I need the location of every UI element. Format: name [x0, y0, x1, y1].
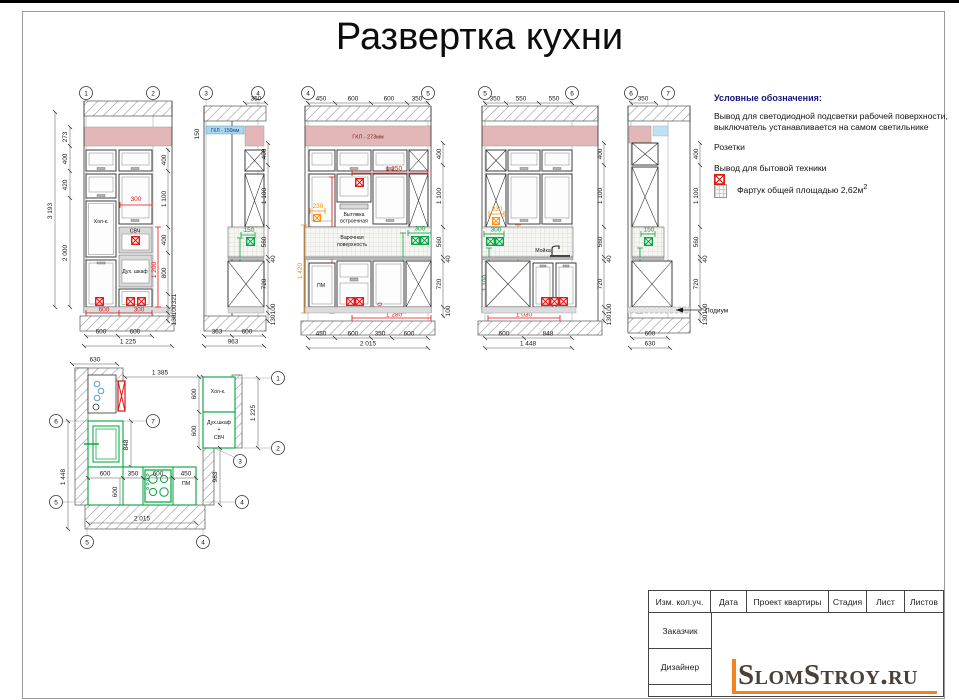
svg-text:130: 130 [171, 314, 178, 325]
svg-text:321: 321 [171, 293, 178, 304]
svg-text:600: 600 [96, 329, 107, 336]
led-output-symbol [314, 215, 321, 222]
tall-cabinet-crossed [409, 150, 428, 227]
logo-accent-bar [732, 659, 736, 691]
title-block: Изм. кол.уч. Дата Проект квартиры Стадия… [648, 590, 944, 697]
svg-text:2 015: 2 015 [360, 341, 377, 348]
svg-text:1 250: 1 250 [386, 166, 403, 173]
socket-symbol [645, 238, 653, 246]
legend-item-text: Вывод для светодиодной подсветки рабочей… [714, 111, 952, 133]
appliance-output-symbol [356, 179, 364, 187]
floor-plan: 630 1 385 Хол-к. Дух.шкаф + [50, 357, 285, 549]
svg-text:600: 600 [645, 331, 656, 338]
svg-text:400: 400 [693, 148, 700, 159]
svg-text:350: 350 [490, 96, 501, 103]
svg-text:720: 720 [597, 278, 604, 289]
base-cabinet-crossed [632, 261, 672, 307]
svg-text:350: 350 [128, 471, 139, 478]
microwave-label: СВЧ [214, 435, 225, 441]
elevation-view-1-2: 1 2 Хол-к. СВЧ Дух. шкаф [47, 87, 178, 349]
svg-text:6: 6 [570, 90, 574, 97]
legend-item-apron: Фартук общей площадью 2,62м2 [714, 183, 952, 198]
svg-text:230: 230 [313, 203, 324, 210]
svg-text:150: 150 [244, 227, 255, 234]
svg-text:450: 450 [316, 96, 327, 103]
svg-text:1 100: 1 100 [261, 187, 268, 204]
svg-text:1 225: 1 225 [250, 404, 257, 421]
dishwasher-label: ПМ [182, 481, 190, 487]
svg-text:2 000: 2 000 [62, 244, 69, 261]
legend-item-text: Розетки [714, 142, 745, 153]
gkl-label: ГКЛ - 273мм [352, 135, 384, 141]
title-block-header: Изм. кол.уч. Дата Проект квартиры Стадия… [649, 591, 943, 613]
svg-text:420: 420 [62, 179, 69, 190]
svg-text:400: 400 [161, 234, 168, 245]
svg-text:600: 600 [191, 425, 198, 436]
legend-title: Условные обозначения: [714, 93, 952, 103]
svg-text:5: 5 [54, 499, 58, 506]
svg-text:400: 400 [436, 148, 443, 159]
total-width-dim: 1 225 [120, 339, 137, 346]
svg-text:963: 963 [228, 339, 239, 346]
svg-text:1 100: 1 100 [597, 187, 604, 204]
svg-text:600: 600 [348, 331, 359, 338]
svg-text:400: 400 [261, 148, 268, 159]
appliance-output-symbol [560, 298, 568, 306]
svg-text:848: 848 [543, 331, 554, 338]
led-output-symbol [493, 218, 500, 225]
empty-row [649, 685, 711, 696]
drawing-sheet: Развертка кухни 1 2 [0, 0, 959, 700]
svg-text:450: 450 [181, 471, 192, 478]
legend-item-text: Вывод для бытовой техники [714, 163, 826, 174]
svg-text:350: 350 [412, 96, 423, 103]
header-cell: Стадия [829, 591, 867, 612]
svg-text:560: 560 [261, 236, 268, 247]
socket-symbol [421, 237, 429, 245]
svg-text:встроенная: встроенная [340, 219, 368, 225]
legend-item-appliance: Вывод для бытовой техники [714, 163, 952, 174]
socket-symbol [487, 238, 495, 246]
svg-text:230: 230 [492, 206, 503, 213]
svg-text:6: 6 [54, 418, 58, 425]
svg-text:550: 550 [549, 96, 560, 103]
svg-text:400: 400 [62, 153, 69, 164]
svg-text:1: 1 [276, 375, 280, 382]
svg-text:40: 40 [702, 255, 709, 263]
svg-text:1 448: 1 448 [520, 341, 537, 348]
svg-text:130: 130 [702, 314, 709, 325]
svg-text:7: 7 [151, 418, 155, 425]
svg-text:600: 600 [99, 307, 110, 314]
svg-text:1 448: 1 448 [60, 468, 67, 485]
svg-text:100: 100 [606, 303, 613, 314]
red-crossed-element [118, 381, 125, 411]
svg-text:100: 100 [270, 303, 277, 314]
appliance-output-symbol [96, 298, 104, 306]
svg-text:100: 100 [702, 303, 709, 314]
svg-text:350: 350 [251, 96, 262, 103]
svg-text:560: 560 [693, 236, 700, 247]
svg-text:630: 630 [90, 357, 101, 364]
logo-underline-bar [732, 691, 937, 694]
oven-label: Дух.шкаф [207, 420, 232, 426]
svg-text:800: 800 [161, 267, 168, 278]
total-height-dim: 3 193 [47, 202, 54, 219]
svg-text:150: 150 [644, 227, 655, 234]
svg-text:100: 100 [445, 305, 452, 316]
svg-text:720: 720 [261, 278, 268, 289]
legend-item-sockets: Розетки [714, 142, 952, 153]
fridge-label: Хол-к. [94, 219, 109, 225]
svg-text:5: 5 [426, 90, 430, 97]
elevation-view-3-4: 3 4 350 ГКЛ - 150мм 150 150 1 100 [194, 87, 277, 349]
svg-text:3: 3 [204, 90, 208, 97]
svg-text:100: 100 [171, 304, 178, 315]
svg-text:600: 600 [499, 331, 510, 338]
fridge-label: Хол-к. [211, 389, 226, 395]
svg-text:1 385: 1 385 [152, 370, 169, 377]
legend-item-led: Вывод для светодиодной подсветки рабочей… [714, 111, 952, 133]
designer-row: Дизайнер [649, 649, 711, 685]
svg-text:4: 4 [240, 499, 244, 506]
header-cell: Листов [905, 591, 943, 612]
svg-text:4: 4 [306, 90, 310, 97]
svg-text:1 200: 1 200 [151, 261, 158, 278]
svg-text:720: 720 [436, 278, 443, 289]
svg-text:273: 273 [62, 131, 69, 142]
svg-text:600: 600 [384, 96, 395, 103]
svg-text:600: 600 [242, 329, 253, 336]
svg-text:40: 40 [270, 255, 277, 263]
svg-text:600: 600 [348, 96, 359, 103]
socket-symbol [496, 238, 504, 246]
microwave-label: СВЧ [130, 229, 141, 235]
appliance-output-symbol [542, 298, 550, 306]
dishwasher-label: ПМ [317, 283, 325, 289]
appliance-output-symbol [127, 298, 135, 306]
base-cabinet-crossed [486, 261, 530, 307]
svg-text:4: 4 [201, 539, 205, 546]
svg-text:40: 40 [445, 255, 452, 263]
axis-bubble: 1 [84, 90, 88, 97]
svg-text:600: 600 [130, 329, 141, 336]
svg-text:1 100: 1 100 [693, 187, 700, 204]
svg-text:300: 300 [134, 307, 145, 314]
svg-text:6: 6 [629, 90, 633, 97]
svg-text:560: 560 [436, 236, 443, 247]
apron-swatch [714, 184, 727, 198]
base-cabinet-crossed [406, 261, 431, 307]
header-cell: Проект квартиры [747, 591, 829, 612]
gkl-label: ГКЛ - 150мм [211, 128, 240, 134]
page-title: Развертка кухни [0, 16, 959, 59]
svg-text:поверхность: поверхность [337, 242, 367, 248]
svg-text:550: 550 [516, 96, 527, 103]
appliance-output-symbol [138, 298, 146, 306]
header-cell: Изм. кол.уч. [649, 591, 711, 612]
appliance-output-symbol [714, 174, 725, 185]
axis-bubble: 2 [151, 90, 155, 97]
svg-text:400: 400 [161, 154, 168, 165]
oven-label: Дух. шкаф [122, 269, 148, 275]
logo-text: SlomStroy.ru [738, 661, 918, 690]
base-cabinet-crossed [228, 261, 264, 307]
svg-text:600: 600 [404, 331, 415, 338]
svg-text:130: 130 [270, 314, 277, 325]
svg-text:720: 720 [693, 278, 700, 289]
svg-text:363: 363 [212, 329, 223, 336]
appliance-output-symbol [356, 298, 364, 306]
elevation-view-4-5: 4 5 450 600 600 350 ГКЛ - 273мм Вытяжка … [297, 87, 452, 351]
appliance-output-symbol [551, 298, 559, 306]
svg-text:983: 983 [212, 471, 219, 482]
top-border [0, 0, 959, 3]
svg-text:848: 848 [123, 439, 130, 450]
slomstroy-logo: SlomStroy.ru [712, 613, 943, 696]
legend: Условные обозначения: Вывод для светодио… [714, 93, 952, 207]
socket-symbol [412, 237, 420, 245]
svg-text:5: 5 [483, 90, 487, 97]
legend-item-text: Фартук общей площадью 2,62м2 [737, 183, 867, 198]
svg-text:300: 300 [131, 196, 142, 203]
svg-text:2: 2 [276, 445, 280, 452]
svg-text:560: 560 [597, 236, 604, 247]
hob-label: Варочная [340, 235, 363, 241]
svg-text:350: 350 [638, 96, 649, 103]
svg-text:1 100: 1 100 [436, 187, 443, 204]
svg-text:5: 5 [85, 539, 89, 546]
svg-text:40: 40 [606, 255, 613, 263]
svg-text:1 100: 1 100 [161, 190, 168, 207]
svg-text:2 015: 2 015 [134, 516, 151, 523]
svg-text:3: 3 [238, 458, 242, 465]
svg-text:600: 600 [191, 388, 198, 399]
sink-label: Мойка [535, 247, 551, 254]
svg-text:130: 130 [606, 314, 613, 325]
elevation-view-5-6: 5 6 350 550 550 230 1 420 300 [478, 87, 613, 351]
svg-text:600: 600 [100, 471, 111, 478]
svg-text:1 420: 1 420 [297, 262, 304, 279]
socket-symbol [247, 238, 255, 246]
svg-text:600: 600 [153, 471, 164, 478]
appliance-output-symbol [347, 298, 355, 306]
svg-text:150: 150 [194, 128, 201, 139]
svg-text:350: 350 [375, 331, 386, 338]
header-cell: Дата [711, 591, 747, 612]
svg-text:7: 7 [666, 90, 670, 97]
svg-text:300: 300 [415, 226, 426, 233]
svg-text:300: 300 [491, 227, 502, 234]
appliance-output-symbol [132, 237, 140, 245]
svg-text:630: 630 [645, 341, 656, 348]
hood-label: Вытяжка [343, 212, 364, 218]
customer-row: Заказчик [649, 613, 711, 649]
svg-text:450: 450 [316, 331, 327, 338]
title-block-left-column: Заказчик Дизайнер [649, 613, 712, 696]
header-cell: Лист [867, 591, 905, 612]
svg-text:600: 600 [112, 486, 119, 497]
tall-cabinet-crossed [632, 143, 658, 227]
svg-text:+: + [217, 427, 220, 433]
svg-text:400: 400 [597, 148, 604, 159]
